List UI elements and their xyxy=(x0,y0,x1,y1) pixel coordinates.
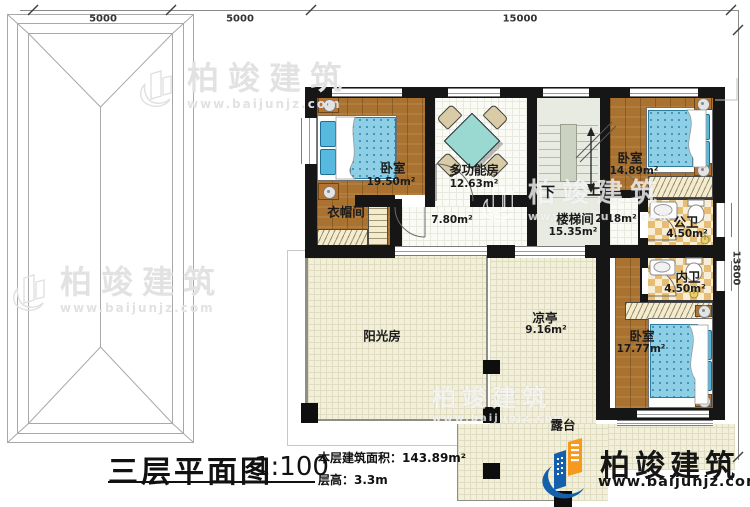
bed-pillow xyxy=(698,361,712,391)
room-area-stairwell: 15.35m² xyxy=(549,226,598,238)
room-label-bedroom2: 卧室 xyxy=(617,148,642,167)
window xyxy=(332,88,402,97)
wall-segment xyxy=(585,245,615,258)
drawing-title: 三层平面图 xyxy=(108,447,273,491)
terrace-railing xyxy=(617,420,713,426)
sunroom-glass-wall-bottom xyxy=(306,419,488,421)
wall-segment xyxy=(596,258,610,420)
room-area-hallway2: 2.18m² xyxy=(595,213,636,225)
adjacent-roof-plan xyxy=(8,15,194,443)
wall-segment xyxy=(470,195,527,207)
lamp-icon xyxy=(697,164,710,177)
room-area-public-bath: 4.50m² xyxy=(666,228,707,240)
bed-mattress xyxy=(650,324,698,398)
lamp-icon xyxy=(698,305,711,318)
terrace-edge-bottom xyxy=(457,500,569,501)
column xyxy=(483,360,500,374)
watermark-logo-icon xyxy=(8,270,50,312)
dimension-label: 15000 xyxy=(503,14,538,25)
pavilion-floor xyxy=(490,258,596,424)
wall-segment xyxy=(305,245,395,258)
title-underline xyxy=(108,481,315,483)
wall-segment xyxy=(610,190,648,198)
column xyxy=(483,407,500,423)
wardrobe xyxy=(648,176,713,198)
room-label-stairwell: 楼梯间 xyxy=(556,209,594,228)
sunroom-glass-wall-left xyxy=(305,253,308,421)
window xyxy=(543,88,589,97)
brand-url: www.baijunjz.com xyxy=(598,474,750,490)
stair-center-wall xyxy=(560,124,577,182)
wardrobe xyxy=(317,229,368,246)
room-area-private-bath: 4.50m² xyxy=(664,283,705,295)
room-label-bedroom3: 卧室 xyxy=(629,326,654,345)
bed-pillow xyxy=(696,114,710,140)
brand-logo-icon xyxy=(536,436,596,500)
column xyxy=(301,403,318,423)
wall-segment xyxy=(487,245,515,258)
dimension-label: 13800 xyxy=(731,251,742,286)
room-label-bedroom1: 卧室 xyxy=(380,158,405,177)
wall-segment xyxy=(390,199,402,248)
room-label-terrace: 露台 xyxy=(550,415,575,434)
room-label-sunroom: 阳光房 xyxy=(363,326,401,345)
bay-window xyxy=(716,203,732,237)
bed-pillow xyxy=(320,121,336,147)
room-label-multi: 多功能房 xyxy=(449,160,499,179)
column xyxy=(483,463,500,479)
wall-segment xyxy=(425,98,435,207)
room-area-bedroom3: 17.77m² xyxy=(617,343,666,355)
lamp-icon xyxy=(698,395,711,408)
room-area-hallway: 7.80m² xyxy=(431,214,472,226)
lamp-icon xyxy=(697,98,710,111)
wall-line xyxy=(648,198,713,200)
bed-mattress xyxy=(648,110,693,167)
watermark-name: 柏竣建筑 xyxy=(60,266,224,298)
stair-up-label: 上 xyxy=(587,180,601,200)
bed-pillow xyxy=(320,149,336,175)
watermark-url: www.baijunjz.com xyxy=(60,301,224,315)
window xyxy=(515,246,585,256)
room-area-multi: 12.63m² xyxy=(450,178,499,190)
window xyxy=(630,88,698,97)
stair-down-label: 下 xyxy=(541,182,555,202)
floor-height-text: 层高：3.3m xyxy=(318,471,388,488)
floor-plan-drawing: 柏竣建筑 www.baijunjz.com 柏竣建筑 www.baijunjz.… xyxy=(0,0,750,507)
wall-segment xyxy=(527,98,537,248)
dimension-label: 5000 xyxy=(89,14,117,25)
bed-pillow xyxy=(698,330,712,360)
sunroom-pavilion-divider xyxy=(486,253,488,421)
floor-area-text: 本层建筑面积：143.89m² xyxy=(318,449,466,466)
lamp-icon xyxy=(323,99,336,112)
window xyxy=(448,88,500,97)
wall-segment xyxy=(425,195,435,207)
sliding-door xyxy=(395,246,487,256)
room-area-pavilion: 9.16m² xyxy=(525,324,566,336)
room-area-bedroom2: 14.89m² xyxy=(610,165,659,177)
room-label-cloakroom: 衣帽间 xyxy=(327,202,365,221)
door-opening xyxy=(642,268,648,294)
window xyxy=(301,118,317,164)
door-opening xyxy=(640,212,648,238)
watermark: 柏竣建筑 www.baijunjz.com xyxy=(8,266,224,315)
lamp-icon xyxy=(323,186,336,199)
dimension-label: 5000 xyxy=(226,14,254,25)
wall-segment xyxy=(613,245,725,258)
wall-segment xyxy=(305,87,317,253)
watermark-logo-icon xyxy=(135,66,177,108)
window xyxy=(637,410,709,418)
room-area-bedroom1: 19.50m² xyxy=(367,176,416,188)
wall-line xyxy=(648,300,713,302)
